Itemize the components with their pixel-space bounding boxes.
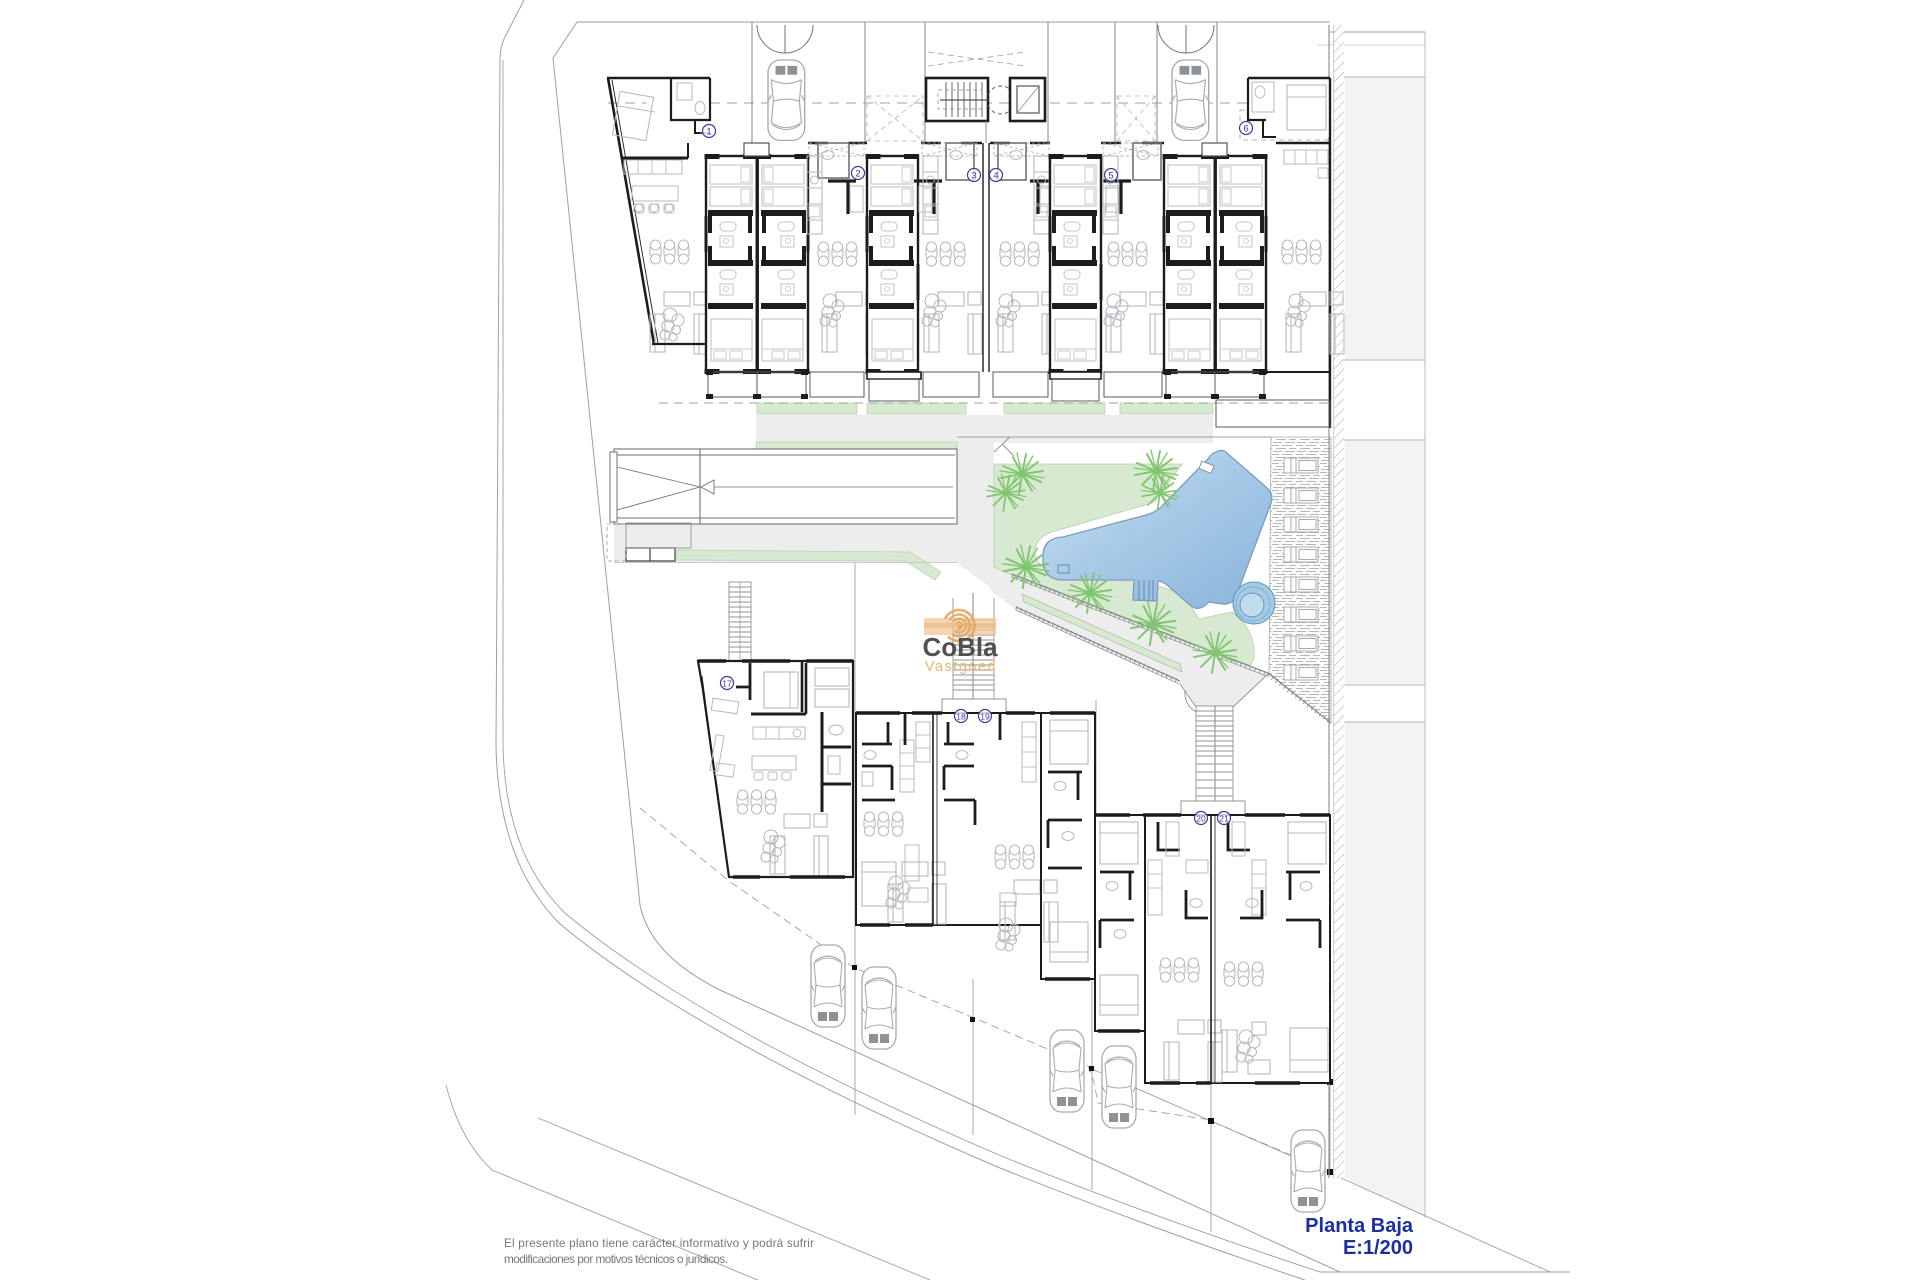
svg-text:20: 20 bbox=[1196, 814, 1206, 824]
svg-text:3: 3 bbox=[971, 171, 976, 182]
svg-text:modificaciones por motivos téc: modificaciones por motivos técnicos o ju… bbox=[504, 1252, 728, 1266]
svg-text:E:1/200: E:1/200 bbox=[1343, 1237, 1413, 1259]
svg-text:19: 19 bbox=[980, 712, 990, 722]
svg-text:CoBla: CoBla bbox=[922, 632, 998, 662]
svg-text:4: 4 bbox=[993, 171, 998, 182]
svg-text:6: 6 bbox=[1243, 124, 1248, 135]
svg-text:Vastgoed: Vastgoed bbox=[925, 659, 997, 675]
svg-text:2: 2 bbox=[855, 169, 860, 180]
svg-text:5: 5 bbox=[1108, 171, 1113, 182]
svg-text:El presente plano tiene caráct: El presente plano tiene carácter informa… bbox=[504, 1236, 814, 1250]
svg-text:1: 1 bbox=[706, 127, 711, 138]
svg-text:21: 21 bbox=[1219, 814, 1229, 824]
svg-text:Planta Baja: Planta Baja bbox=[1305, 1215, 1414, 1237]
svg-text:18: 18 bbox=[956, 712, 966, 722]
svg-text:17: 17 bbox=[722, 679, 732, 689]
